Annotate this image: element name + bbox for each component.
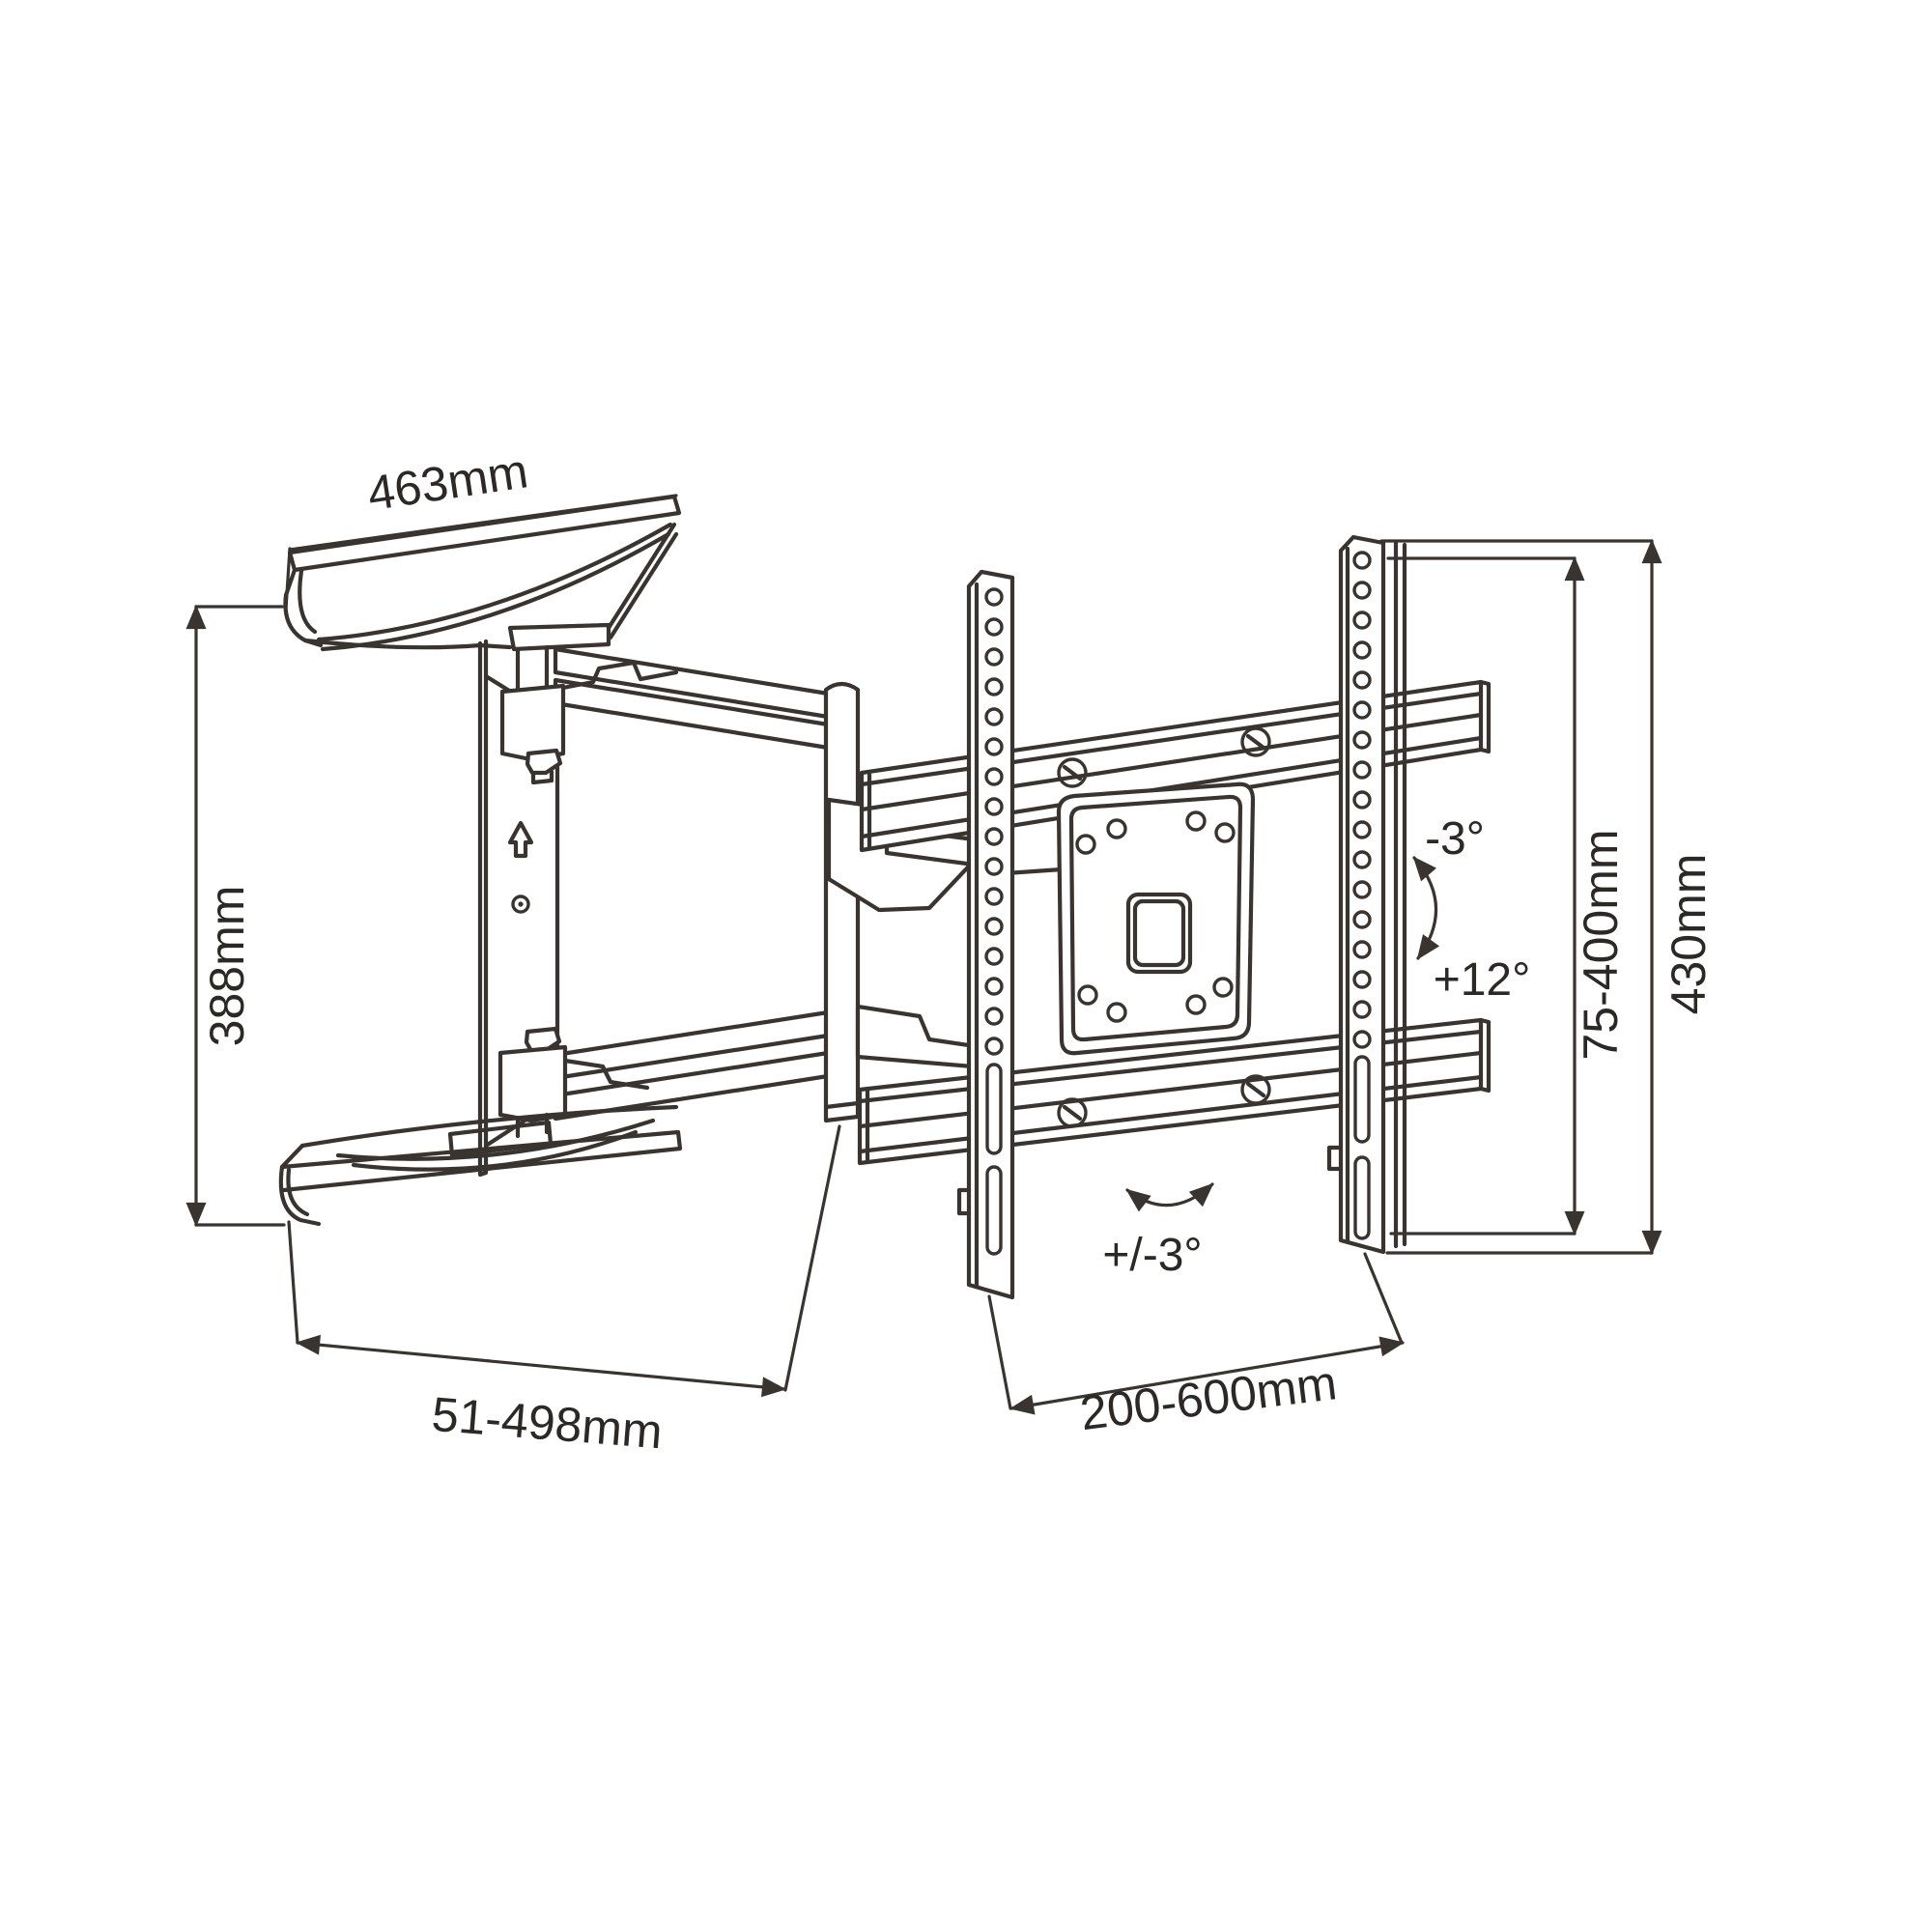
tilt-forward-label: +12° — [1434, 954, 1531, 1006]
diagram-stage: 463mm 388mm 51-498mm 200-600mm 75-400mm — [0, 0, 1932, 1932]
keyhole-icon — [513, 896, 528, 912]
tilt-curved-arrow-icon — [1414, 858, 1436, 958]
tilt-back-label: -3° — [1425, 813, 1485, 865]
annotation-tilt: -3° +12° — [1414, 813, 1530, 1006]
top-arm-cover-plate — [285, 497, 679, 649]
dim-arm-extension: 51-498mm — [289, 1126, 839, 1459]
vesa-height-label: 75-400mm — [1574, 830, 1628, 1061]
dim-vesa-height: 75-400mm — [1388, 558, 1628, 1234]
dim-rail-width: 200-600mm — [989, 1254, 1403, 1440]
swivel-angle-label: +/-3° — [1102, 1230, 1202, 1281]
swivel-curved-arrow-icon — [1127, 1184, 1212, 1206]
top-plate-width-label: 463mm — [364, 443, 531, 521]
lower-arm — [555, 1012, 828, 1119]
upper-arm — [555, 649, 828, 748]
dim-bracket-height: 430mm — [1381, 541, 1716, 1253]
top-hinge — [502, 686, 563, 782]
rail-width-label: 200-600mm — [1077, 1355, 1340, 1440]
wall-plate-height-label: 388mm — [200, 886, 254, 1047]
vesa-adapter-plate — [1059, 784, 1253, 1053]
bottom-hinge — [500, 1029, 565, 1121]
annotation-swivel: +/-3° — [1102, 1184, 1212, 1281]
right-vesa-strip — [1329, 537, 1405, 1252]
arm-extension-label: 51-498mm — [430, 1387, 665, 1460]
dim-wall-plate-height: 388mm — [196, 607, 284, 1225]
left-vesa-strip — [959, 572, 1012, 1297]
up-arrow-icon — [510, 823, 531, 856]
dimension-annotations: 463mm 388mm 51-498mm 200-600mm 75-400mm — [196, 443, 1716, 1459]
bracket-height-label: 430mm — [1662, 854, 1716, 1015]
wall-mount-diagram: 463mm 388mm 51-498mm 200-600mm 75-400mm — [0, 0, 1932, 1932]
